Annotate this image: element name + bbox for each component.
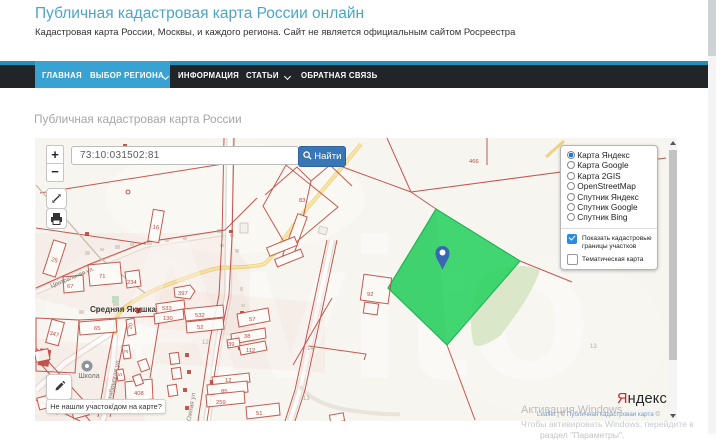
svg-text:85: 85 <box>221 389 227 395</box>
svg-text:51: 51 <box>256 411 262 417</box>
svg-text:112: 112 <box>246 348 255 354</box>
svg-text:92: 92 <box>367 292 373 298</box>
svg-text:259: 259 <box>216 400 226 406</box>
svg-text:12: 12 <box>202 340 209 346</box>
svg-text:83: 83 <box>299 198 305 204</box>
svg-text:12: 12 <box>225 378 231 384</box>
svg-text:52: 52 <box>197 325 203 331</box>
svg-text:533: 533 <box>162 306 172 312</box>
svg-text:13: 13 <box>303 396 310 402</box>
svg-text:234: 234 <box>127 280 137 286</box>
svg-text:532: 532 <box>195 313 205 319</box>
svg-text:16: 16 <box>152 224 159 231</box>
svg-text:57: 57 <box>249 317 255 323</box>
svg-text:130: 130 <box>163 316 173 322</box>
svg-text:65: 65 <box>94 326 100 332</box>
svg-text:Школа: Школа <box>78 373 99 380</box>
svg-text:20: 20 <box>128 323 135 330</box>
svg-text:71: 71 <box>99 274 105 280</box>
svg-text:466: 466 <box>469 159 479 165</box>
svg-text:38: 38 <box>244 334 250 340</box>
svg-text:14: 14 <box>307 346 314 352</box>
svg-text:Средняя Якушка: Средняя Якушка <box>90 305 156 314</box>
svg-text:397: 397 <box>178 291 188 297</box>
svg-text:408: 408 <box>134 391 144 397</box>
svg-text:39: 39 <box>228 342 234 348</box>
svg-text:67: 67 <box>67 284 73 290</box>
svg-text:13: 13 <box>590 344 597 350</box>
